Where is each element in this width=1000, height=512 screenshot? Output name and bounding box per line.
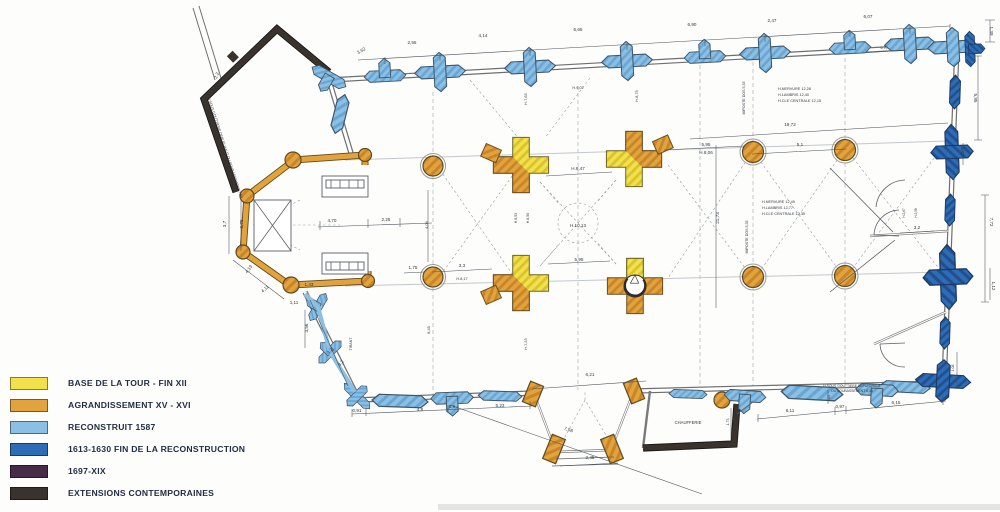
plan-label: 4,8 xyxy=(417,407,424,412)
column xyxy=(832,137,858,163)
column xyxy=(832,263,858,289)
wall-segment xyxy=(669,389,707,398)
legend-label: BASE DE LA TOUR - FIN XII xyxy=(68,378,187,388)
column xyxy=(740,264,766,290)
plan-label: 0,97 xyxy=(836,404,845,409)
plan-label: 6,15 xyxy=(892,400,901,405)
plan-label: H.NERVURE 12,49 xyxy=(762,200,795,204)
corner-return xyxy=(965,31,986,67)
plan-label: H.7,23 xyxy=(524,338,528,349)
legend-item: 1697-XIX xyxy=(10,464,245,478)
plan-label: H.CLE CENTRALE 12,15 xyxy=(778,99,821,103)
plan-label: 1,39 xyxy=(989,27,994,36)
plan-label: 4,70 xyxy=(328,218,337,223)
plan-label: 6,90 xyxy=(688,22,697,27)
legend-label: AGRANDISSEMENT XV - XVI xyxy=(68,400,191,410)
legend-swatch xyxy=(10,399,48,412)
wall-segment xyxy=(945,194,956,226)
plan-label: H.8,17 xyxy=(456,277,467,281)
plan-label: H.8,75 xyxy=(635,90,639,101)
plan-label: 4,05 xyxy=(425,221,429,228)
legend-item: BASE DE LA TOUR - FIN XII xyxy=(10,376,245,390)
buttresses-1613-1630 xyxy=(914,31,985,404)
plan-label: H.7,63 xyxy=(524,93,528,104)
legend-swatch xyxy=(10,443,48,456)
plan-label: 5,95 xyxy=(575,257,584,262)
legend-item: AGRANDISSEMENT XV - XVI xyxy=(10,398,245,412)
buttress xyxy=(930,124,974,181)
wall-segment xyxy=(372,394,428,408)
plan-label: 3,2 xyxy=(914,225,921,230)
legend-item: RECONSTRUIT 1587 xyxy=(10,420,245,434)
detached-wall-fragment xyxy=(193,6,221,80)
plan-label: 21,73 xyxy=(715,212,720,224)
plan-label: H.LAMBRIS 12,77 xyxy=(762,206,793,210)
plan-label: 7,58 xyxy=(563,426,573,434)
plan-label: H.8,47 xyxy=(571,166,585,171)
buttress xyxy=(922,244,974,310)
plan-label: 2,45 xyxy=(586,455,595,460)
plan-label: 4,11 xyxy=(260,284,270,294)
plan-label: 6,07 xyxy=(864,14,873,19)
plan-label: H.2,67 xyxy=(902,208,906,218)
plan-label: 1,05 xyxy=(827,395,831,401)
wall-segment xyxy=(940,317,951,349)
plan-label: H SOUS GOUTTIERE DEPUIS HAUT xyxy=(823,384,880,388)
plan-label: H.8,50 xyxy=(526,213,530,224)
plan-label: 2,47 xyxy=(768,18,777,23)
plan-label: 1,43 xyxy=(305,282,314,287)
buttress xyxy=(683,38,726,63)
legend: BASE DE LA TOUR - FIN XII AGRANDISSEMENT… xyxy=(10,376,245,500)
altar xyxy=(254,200,291,251)
plan-label: IMPOSTE DOS 5,35 xyxy=(745,221,749,254)
scan-artifact xyxy=(438,504,1000,510)
plan-label: H.10,13 xyxy=(570,223,587,228)
plan-label: TIRANT xyxy=(349,337,353,351)
legend-label: RECONSTRUIT 1587 xyxy=(68,422,156,432)
legend-swatch xyxy=(10,487,48,500)
plan-label: H.LAMBRIS 12,40 xyxy=(778,93,809,97)
plan-label: 5,23 xyxy=(496,403,505,408)
legend-label: 1613-1630 FIN DE LA RECONSTRUCTION xyxy=(68,444,245,454)
plan-label: 1,75 xyxy=(409,265,418,270)
column xyxy=(740,139,766,165)
floor-plan-page: 3,522,554,146,656,902,476,071,395,952,2H… xyxy=(0,0,1000,512)
corner-buttress xyxy=(914,358,971,403)
plan-label: H.8,06 xyxy=(699,150,713,155)
plan-label: 0,9 xyxy=(449,404,456,409)
plan-label: 19,72 xyxy=(784,122,796,127)
plan-label: 4,14 xyxy=(479,33,488,38)
door-swings xyxy=(737,168,905,414)
buttresses-1587 xyxy=(299,23,980,418)
plan-label: 1,12 xyxy=(991,282,996,291)
plan-label: 8,45 xyxy=(427,326,431,333)
plan-label: H.NERVURE 12,28 xyxy=(778,87,811,91)
plan-label: 3,56 xyxy=(304,323,309,332)
plan-label: H.CLE CENTRALE 12,35 xyxy=(762,212,805,216)
plan-label: DU SOUBASSEMENT 8,44 xyxy=(831,389,873,393)
plan-label: 1,02 xyxy=(960,148,965,157)
plan-label: 1,08 xyxy=(951,365,955,372)
plan-label: CHAUFFERIE xyxy=(675,420,702,425)
plan-label: 6,65 xyxy=(574,27,583,32)
plan-label: 6,11 xyxy=(786,408,795,413)
buttress xyxy=(363,57,406,82)
tower-pier-se xyxy=(607,258,662,313)
plan-label: 0,91 xyxy=(353,408,362,413)
plan-label: 7,72 xyxy=(989,218,994,227)
legend-item: 1613-1630 FIN DE LA RECONSTRUCTION xyxy=(10,442,245,456)
plan-label: 1,11 xyxy=(290,300,299,305)
plan-label: 4,13 xyxy=(244,264,253,275)
plan-label: 2,76 xyxy=(239,219,244,228)
buttress xyxy=(828,29,871,54)
plan-label: 6,21 xyxy=(586,372,595,377)
column xyxy=(421,154,446,179)
plan-label: IMPOSTE DOS 5,35 xyxy=(742,82,746,115)
legend-label: 1697-XIX xyxy=(68,466,106,476)
plan-label: 1,73 xyxy=(726,419,730,426)
column xyxy=(421,265,446,290)
legend-swatch xyxy=(10,377,48,390)
porch-pier xyxy=(522,381,543,407)
plan-label: 2,25 xyxy=(382,217,391,222)
wall-segment xyxy=(478,391,522,402)
furniture xyxy=(254,168,905,466)
plan-label: 2,55 xyxy=(408,40,417,45)
plan-label: 3,7 xyxy=(222,220,227,227)
plan-label: 3,3 xyxy=(459,263,466,268)
legend-swatch xyxy=(10,465,48,478)
tower-pier-nw xyxy=(481,137,549,192)
plan-label: H.8,53 xyxy=(514,213,518,224)
plan-label: 5,95 xyxy=(702,142,711,147)
plan-label: H SOUS GOUTTIERE DEPUIS HAUT DU SOUBASSE… xyxy=(207,97,244,199)
tower-pier-ne xyxy=(606,131,673,186)
plan-label: 5,95 xyxy=(973,94,978,103)
plan-label: 3,52 xyxy=(356,46,367,55)
plan-label: 6,70 xyxy=(881,46,888,50)
legend-label: EXTENSIONS CONTEMPORAINES xyxy=(68,488,214,498)
wall-segment xyxy=(949,75,960,109)
legend-swatch xyxy=(10,421,48,434)
legend-item: EXTENSIONS CONTEMPORAINES xyxy=(10,486,245,500)
plan-label: 5,1 xyxy=(797,142,804,147)
plan-label: H.2,58 xyxy=(914,208,918,218)
plan-label: H.9,02 xyxy=(572,86,583,90)
